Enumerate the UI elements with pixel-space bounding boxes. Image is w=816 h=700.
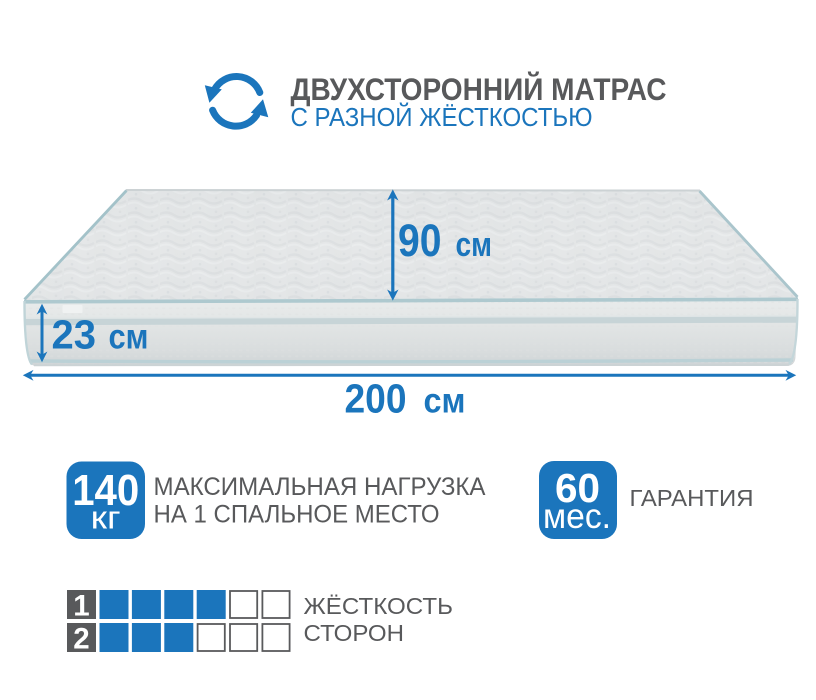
svg-text:23: 23 (52, 311, 97, 357)
svg-text:1: 1 (73, 590, 89, 623)
svg-text:СТОРОН: СТОРОН (304, 620, 405, 646)
svg-text:С РАЗНОЙ ЖЁСТКОСТЬЮ: С РАЗНОЙ ЖЁСТКОСТЬЮ (291, 102, 593, 132)
svg-text:ДВУХСТОРОННИЙ МАТРАС: ДВУХСТОРОННИЙ МАТРАС (291, 71, 667, 107)
svg-text:НА 1 СПАЛЬНОЕ МЕСТО: НА 1 СПАЛЬНОЕ МЕСТО (154, 501, 440, 528)
svg-text:мес.: мес. (543, 496, 611, 536)
svg-text:см: см (424, 381, 466, 421)
svg-text:МАКСИМАЛЬНАЯ НАГРУЗКА: МАКСИМАЛЬНАЯ НАГРУЗКА (154, 474, 487, 501)
svg-text:см: см (456, 226, 493, 264)
svg-text:200: 200 (345, 376, 407, 422)
svg-text:кг: кг (91, 500, 121, 536)
svg-text:ЖЁСТКОСТЬ: ЖЁСТКОСТЬ (304, 593, 454, 619)
svg-text:см: см (109, 316, 149, 356)
svg-text:90: 90 (398, 215, 442, 266)
svg-text:2: 2 (73, 623, 89, 656)
svg-text:ГАРАНТИЯ: ГАРАНТИЯ (630, 485, 754, 511)
